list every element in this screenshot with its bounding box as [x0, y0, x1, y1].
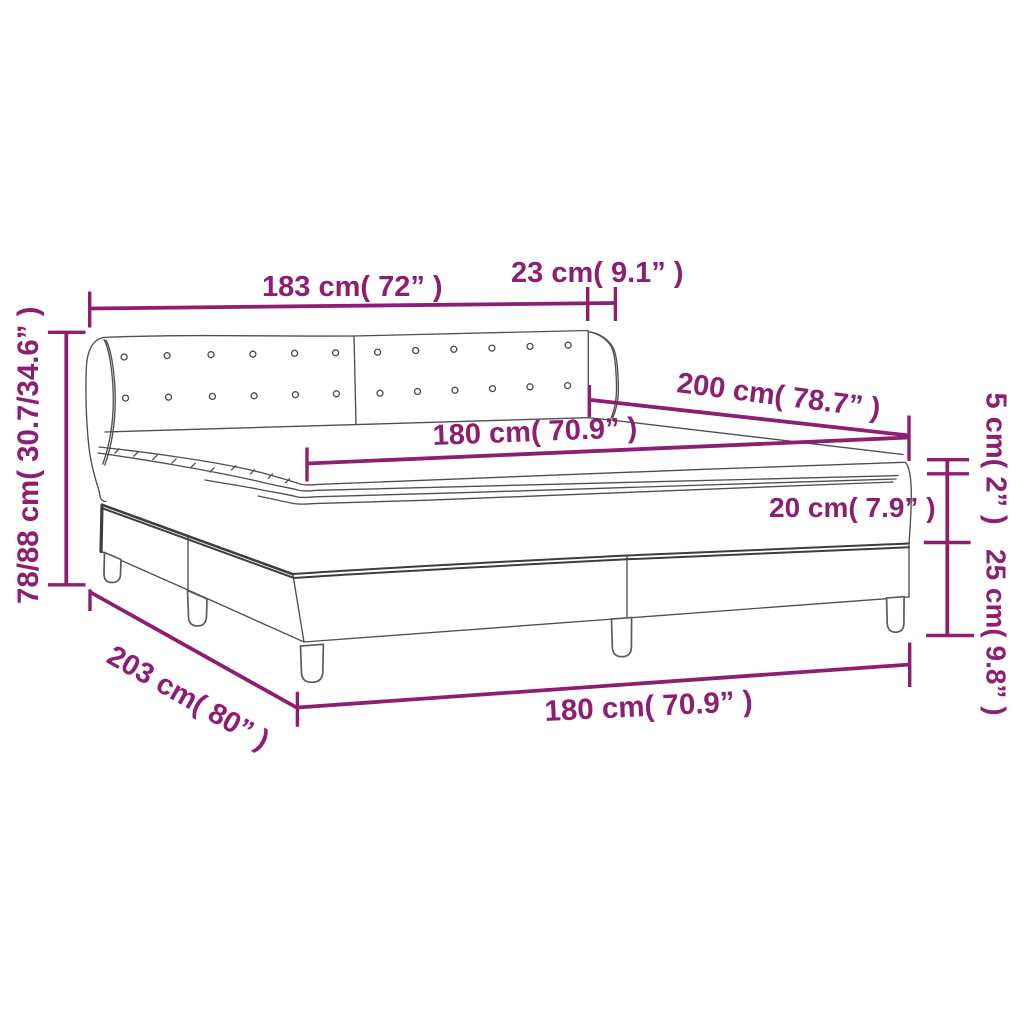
svg-text:20 cm( 7.9” ): 20 cm( 7.9” ) [769, 492, 936, 523]
svg-text:5 cm( 2” ): 5 cm( 2” ) [980, 393, 1012, 525]
svg-text:183 cm( 72” ): 183 cm( 72” ) [262, 271, 443, 303]
svg-text:78/88 cm( 30.7/34.6” ): 78/88 cm( 30.7/34.6” ) [12, 307, 45, 604]
svg-text:25 cm( 9.8” ): 25 cm( 9.8” ) [981, 549, 1012, 716]
svg-text:23 cm( 9.1” ): 23 cm( 9.1” ) [511, 257, 683, 289]
